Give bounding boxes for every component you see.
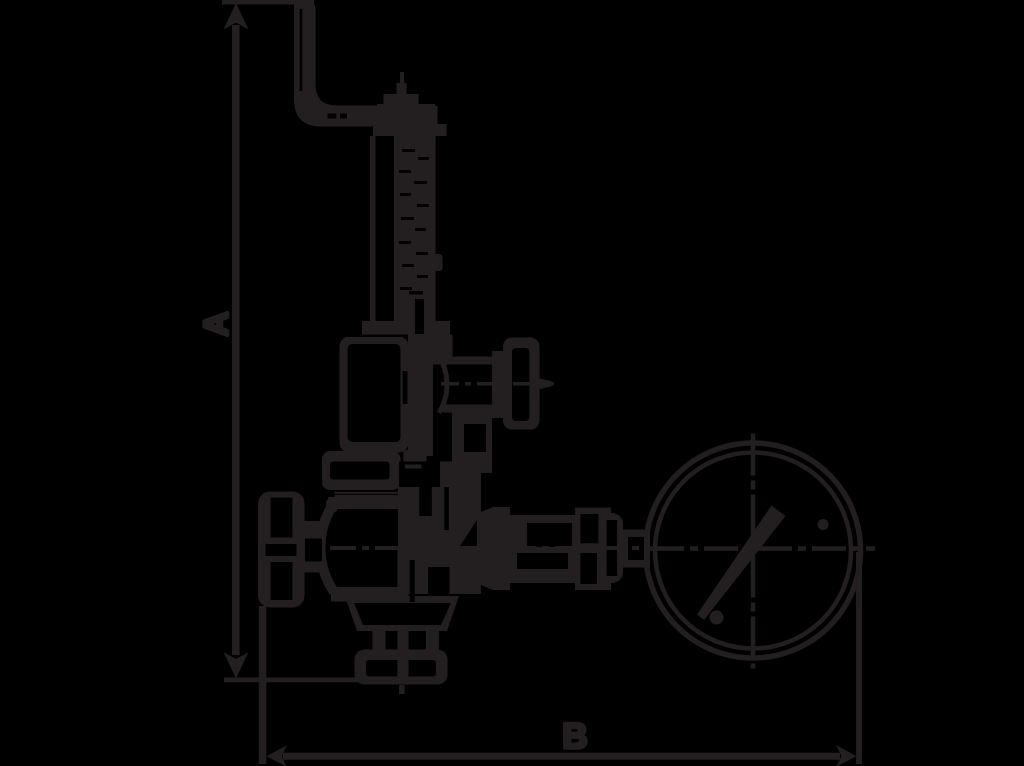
svg-text:B: B: [562, 717, 587, 756]
svg-text:A: A: [198, 312, 236, 337]
